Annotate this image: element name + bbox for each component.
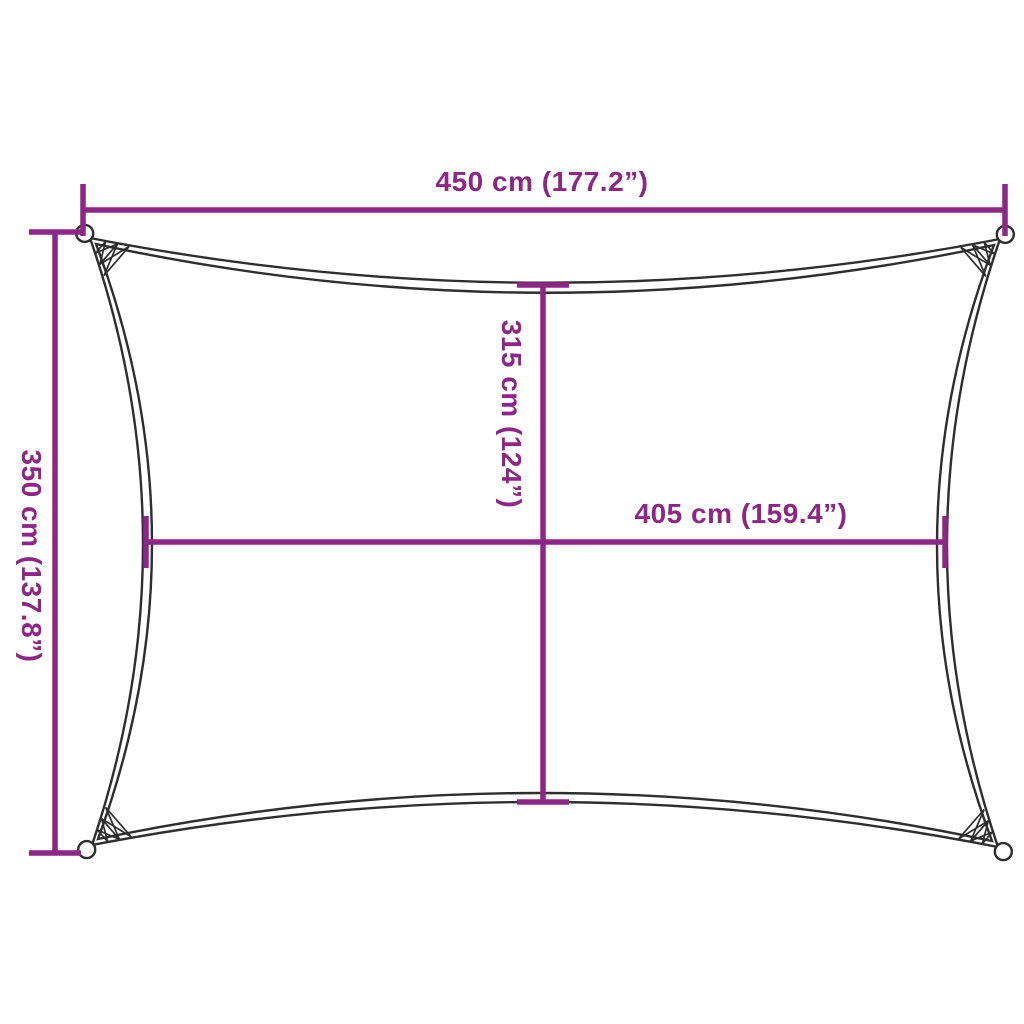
left-height-label: 350 cm (137.8”): [15, 450, 47, 663]
top-width-label: 450 cm (177.2”): [436, 166, 649, 198]
inner-height-label: 315 cm (124”): [495, 320, 527, 509]
inner-width-label: 405 cm (159.4”): [635, 498, 848, 530]
corner-grommet-bottom-right: [995, 843, 1012, 860]
diagram-canvas: 450 cm (177.2”) 350 cm (137.8”) 315 cm (…: [0, 0, 1024, 1024]
sail-diagram-svg: [0, 0, 1024, 1024]
dimension-lines: [29, 184, 1005, 853]
